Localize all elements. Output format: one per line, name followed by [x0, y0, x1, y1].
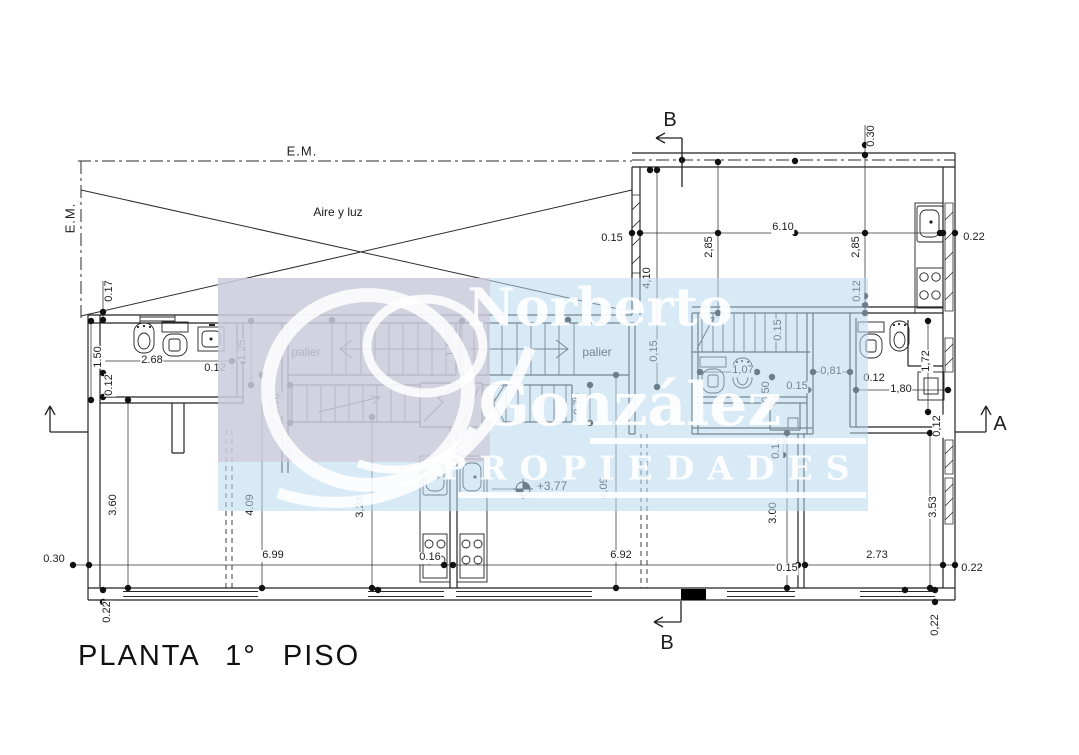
hatched-openings: [632, 195, 953, 524]
dimension-lines: [73, 125, 955, 588]
sink-icon: [198, 325, 224, 351]
kitchen-sink-icon: [423, 459, 447, 495]
floor-plan-page: E.M. E.M. Aire y luz palier palier +3.77…: [0, 0, 1079, 755]
toilet-icon: [858, 322, 884, 358]
stair-treads: [307, 313, 797, 422]
section-markers: [45, 133, 991, 627]
bidet-icon: [733, 358, 752, 388]
bathroom-left-fixtures: [134, 322, 224, 356]
kitchen-top-right: [915, 203, 943, 313]
bathroom-center-fixtures: [700, 357, 752, 393]
section-cut-mark: [681, 589, 706, 600]
bidet-icon: [134, 323, 154, 353]
shower-tray-icon: [918, 372, 944, 400]
bathroom-right-fixtures: [858, 321, 944, 400]
bidet-icon: [890, 321, 909, 351]
property-lines: [78, 160, 955, 318]
stove-icon: [460, 534, 484, 578]
dimension-dots: [73, 145, 955, 602]
kitchen-sink-icon: [917, 206, 943, 242]
toilet-icon: [162, 322, 188, 356]
plan-title: PLANTA 1° PISO: [78, 640, 360, 673]
projection-lines: [226, 430, 647, 588]
toilet-icon: [700, 357, 726, 393]
kitchen-sink-icon: [460, 459, 484, 495]
stove-icon: [423, 534, 447, 578]
stove-icon: [917, 268, 943, 308]
courtyard-diagonals: [81, 190, 632, 316]
